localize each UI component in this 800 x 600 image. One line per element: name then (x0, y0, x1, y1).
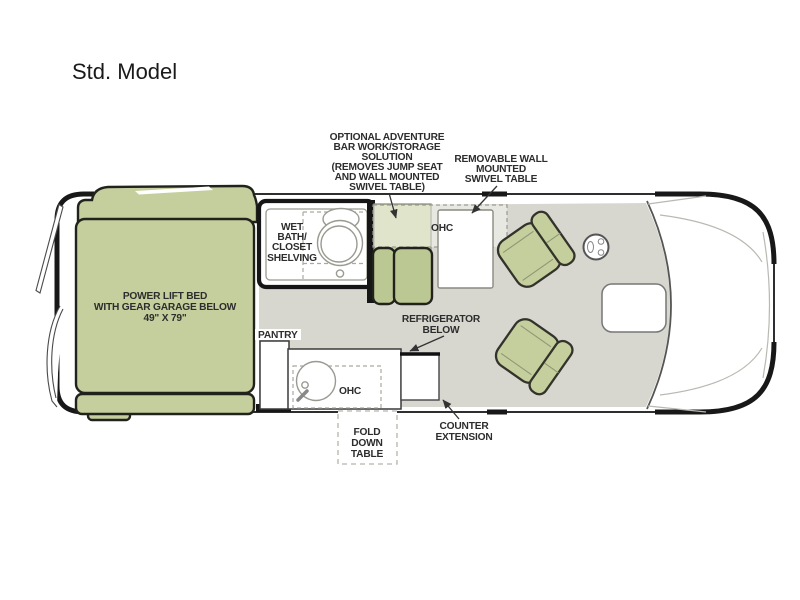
rv-floorplan-diagram: Std. Model POWER LIFT BED WITH GEAR GARA… (0, 0, 800, 600)
wet-bath: WET BATH/ CLOSET SHELVING (259, 201, 374, 287)
sink-drain-icon (302, 382, 308, 388)
jump-seat-cushion-left (373, 248, 395, 304)
power-lift-bed: POWER LIFT BED WITH GEAR GARAGE BELOW 49… (76, 186, 257, 420)
refrigerator-label-line1: REFRIGERATOR (402, 314, 481, 325)
counter-ext-label-line2: EXTENSION (435, 432, 492, 443)
steering-hub-top (598, 239, 604, 245)
fold-table-label-line3: TABLE (351, 449, 384, 460)
wet-bath-label-line4: SHELVING (267, 253, 317, 264)
fold-down-table: FOLD DOWN TABLE (338, 411, 397, 464)
jump-seat-cushion-right (394, 248, 432, 304)
adventure-label-line6: SWIVEL TABLE) (349, 182, 425, 193)
counter-extension-top (401, 354, 439, 400)
bed-label-line2: WITH GEAR GARAGE BELOW (94, 302, 237, 313)
toilet-seat-icon (321, 226, 357, 262)
ohc-galley-label: OHC (339, 386, 362, 397)
page-title: Std. Model (72, 59, 177, 84)
bed-footboard (76, 394, 254, 414)
bed-label-line1: POWER LIFT BED (123, 291, 207, 302)
ohc-upper-label: OHC (431, 223, 454, 234)
cab-console (602, 284, 666, 332)
counter-extension (400, 354, 440, 400)
fold-table-label-line1: FOLD (354, 427, 381, 438)
steering-hub-left (588, 242, 594, 253)
pantry-label: PANTRY (258, 330, 298, 341)
counter-ext-label-line1: COUNTER (440, 421, 490, 432)
shower-drain-icon (336, 270, 343, 277)
galley-counter: OHC (288, 349, 401, 409)
steering-hub-bottom (598, 250, 604, 256)
refrigerator-label-line2: BELOW (423, 325, 460, 336)
fold-table-label-line2: DOWN (351, 438, 382, 449)
swivel-label-line3: SWIVEL TABLE (465, 174, 538, 185)
floorplan-page: Std. Model POWER LIFT BED WITH GEAR GARA… (0, 0, 800, 600)
swivel-table (438, 210, 493, 288)
pantry-cabinet (260, 341, 289, 409)
bed-label-line3: 49" X 79" (144, 313, 187, 324)
wet-bath-label-line3: CLOSET (272, 242, 313, 253)
